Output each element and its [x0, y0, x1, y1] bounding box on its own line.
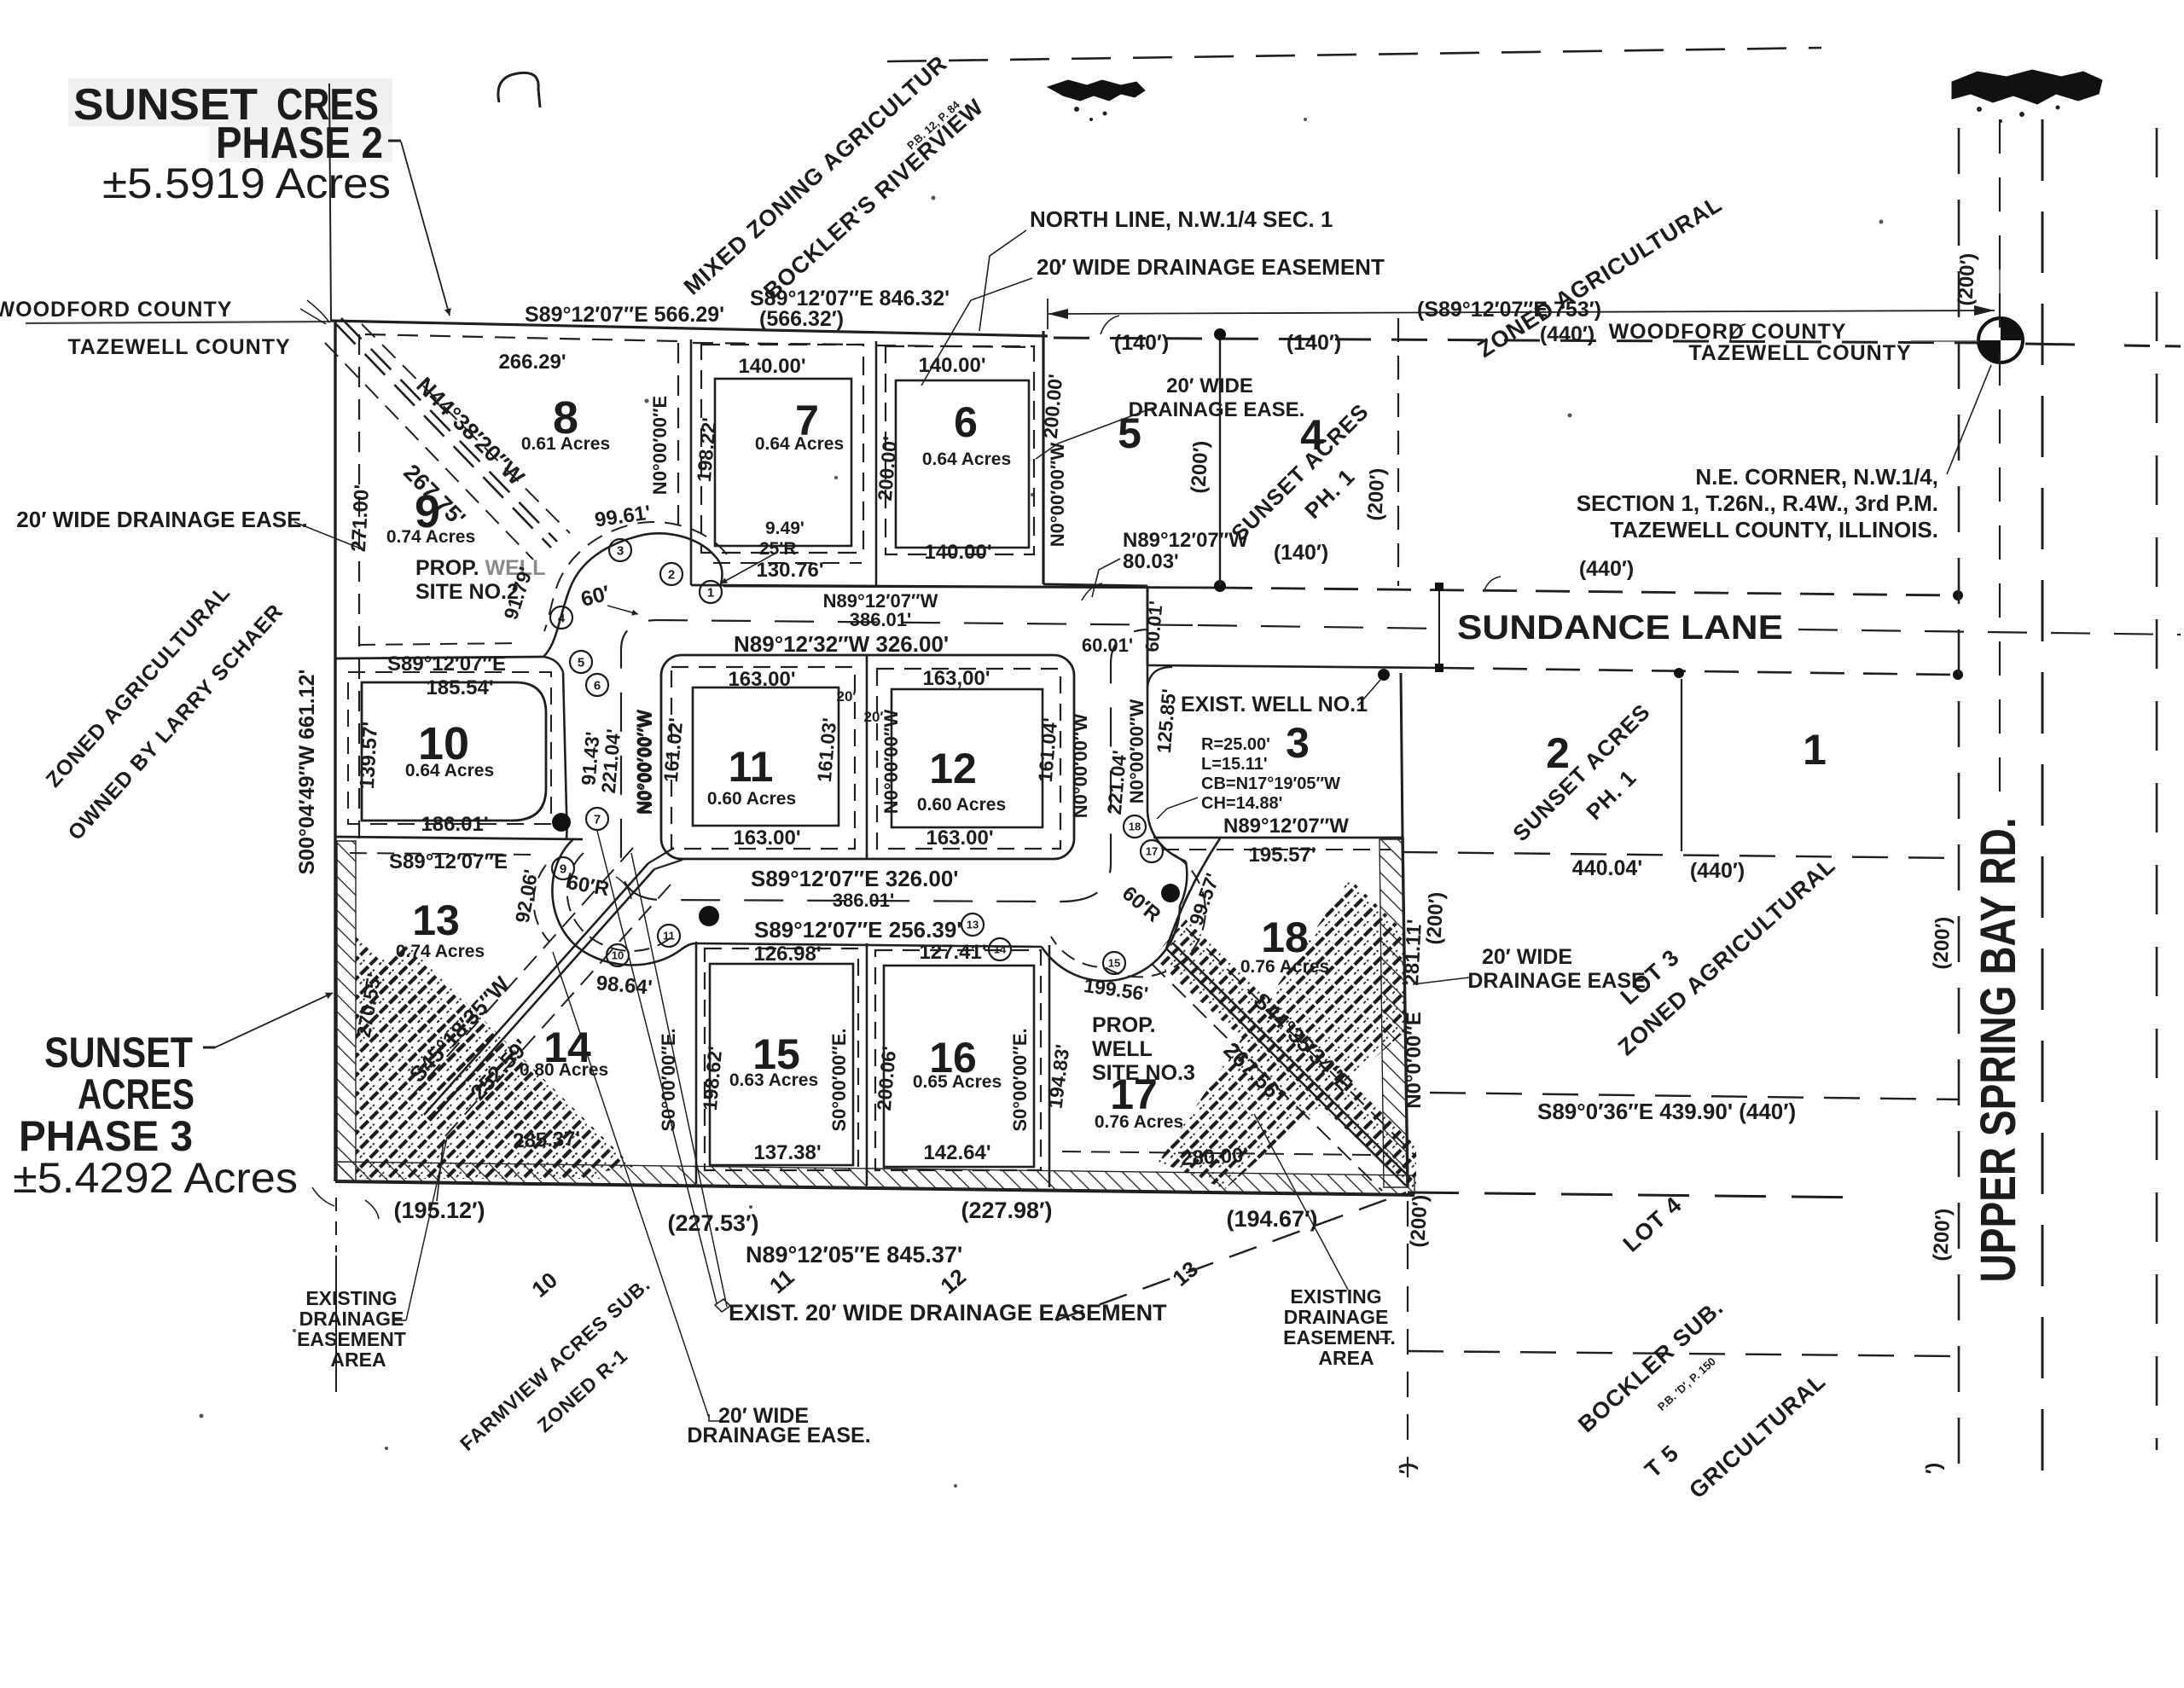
- svg-text:386.01': 386.01': [833, 890, 895, 911]
- svg-text:0.63 Acres: 0.63 Acres: [729, 1070, 818, 1090]
- svg-text:20′ WIDE DRAINAGE EASE.: 20′ WIDE DRAINAGE EASE.: [16, 507, 307, 532]
- svg-text:′): ′): [1922, 1462, 1946, 1475]
- svg-text:60.01': 60.01': [1141, 600, 1166, 653]
- svg-text:S89°12′07″E 256.39': S89°12′07″E 256.39': [754, 917, 961, 943]
- svg-text:142.64': 142.64': [923, 1141, 990, 1164]
- svg-text:N0°00′00″W: N0°00′00″W: [635, 711, 656, 815]
- svg-text:126.98': 126.98': [753, 943, 821, 966]
- svg-text:186.01': 186.01': [421, 813, 488, 836]
- svg-text:N0°00′00″W: N0°00′00″W: [1126, 699, 1147, 804]
- svg-text:SUNSET: SUNSET: [44, 1029, 193, 1076]
- svg-text:13: 13: [967, 919, 979, 931]
- svg-text:0.64 Acres: 0.64 Acres: [922, 450, 1011, 469]
- svg-text:TAZEWELL COUNTY: TAZEWELL COUNTY: [67, 335, 290, 359]
- svg-text:98.64': 98.64': [595, 972, 653, 1000]
- svg-text:163.00': 163.00': [926, 827, 993, 850]
- svg-text:AREA: AREA: [1318, 1347, 1374, 1369]
- svg-text:6: 6: [594, 678, 601, 693]
- svg-text:N0°00′00″E: N0°00′00″E: [649, 396, 671, 495]
- svg-text:(227.53′): (227.53′): [667, 1210, 758, 1236]
- svg-text:N0°00′00″W: N0°00′00″W: [1047, 443, 1068, 548]
- svg-text:25'R: 25'R: [759, 539, 797, 559]
- svg-text:140.00': 140.00': [924, 541, 991, 564]
- svg-text:15: 15: [1108, 957, 1120, 970]
- svg-text:12: 12: [929, 745, 977, 792]
- svg-text:9: 9: [560, 861, 566, 876]
- svg-text:(440′): (440′): [1579, 557, 1634, 581]
- svg-text:SUNDANCE LANE: SUNDANCE LANE: [1457, 609, 1783, 647]
- svg-text:271.00': 271.00': [347, 484, 374, 552]
- svg-text:(195.12′): (195.12′): [393, 1198, 485, 1223]
- svg-text:(140′): (140′): [1114, 331, 1169, 355]
- svg-text:(227.98′): (227.98′): [961, 1198, 1052, 1223]
- svg-text:N89°12′05″E 845.37': N89°12′05″E 845.37': [746, 1242, 962, 1267]
- svg-text:137.38': 137.38': [753, 1141, 821, 1164]
- svg-text:S89°12′07″E 566.29': S89°12′07″E 566.29': [525, 303, 724, 327]
- svg-text:R=25.00': R=25.00': [1201, 735, 1270, 754]
- svg-text:EXISTING: EXISTING: [1290, 1285, 1381, 1308]
- svg-text:DRAINAGE EASE.: DRAINAGE EASE.: [1129, 398, 1305, 421]
- svg-text:163.00': 163.00': [733, 827, 800, 850]
- svg-text:0.74 Acres: 0.74 Acres: [386, 527, 475, 547]
- svg-text:11: 11: [663, 930, 675, 943]
- svg-text:139.57': 139.57': [356, 721, 382, 789]
- svg-text:±5.5919 Acres: ±5.5919 Acres: [102, 160, 391, 207]
- svg-text:127.41': 127.41': [919, 941, 986, 964]
- svg-text:S89°12′07″E 326.00': S89°12′07″E 326.00': [751, 866, 958, 891]
- svg-text:S0°00′00″E.: S0°00′00″E.: [658, 1028, 679, 1131]
- svg-text:WELL: WELL: [1092, 1037, 1153, 1061]
- svg-text:NORTH LINE, N.W.1/4 SEC. 1: NORTH LINE, N.W.1/4 SEC. 1: [1030, 206, 1333, 232]
- svg-text:S0°00′00″E.: S0°00′00″E.: [1009, 1028, 1031, 1131]
- svg-text:EASEMENT.: EASEMENT.: [1283, 1326, 1396, 1349]
- svg-text:(440′): (440′): [1690, 859, 1745, 883]
- svg-text:CB=N17°19′05″W: CB=N17°19′05″W: [1201, 774, 1340, 793]
- svg-text:SITE NO.2: SITE NO.2: [415, 580, 519, 604]
- svg-text:163.00': 163.00': [728, 668, 795, 691]
- svg-text:60.01': 60.01': [1082, 635, 1133, 656]
- svg-text:185.54': 185.54': [426, 676, 493, 699]
- svg-text:L=15.11': L=15.11': [1201, 755, 1268, 774]
- svg-text:N89°12′32″W 326.00': N89°12′32″W 326.00': [734, 631, 949, 657]
- svg-text:S00°04′49″W 661.12': S00°04′49″W 661.12': [295, 669, 319, 874]
- svg-text:20′: 20′: [864, 709, 884, 725]
- svg-text:163,00': 163,00': [922, 667, 990, 690]
- svg-text:S0°00′00″E.: S0°00′00″E.: [828, 1028, 850, 1131]
- svg-text:20′ WIDE: 20′ WIDE: [1482, 945, 1572, 969]
- svg-text:0.60 Acres: 0.60 Acres: [917, 795, 1006, 815]
- svg-text:0.65 Acres: 0.65 Acres: [913, 1072, 1002, 1092]
- svg-text:3: 3: [1286, 719, 1310, 767]
- svg-text:440.04': 440.04': [1572, 856, 1642, 880]
- svg-text:PROP.: PROP.: [1092, 1013, 1156, 1037]
- svg-text:130.76': 130.76': [756, 559, 823, 582]
- svg-text:6: 6: [954, 398, 978, 446]
- svg-text:DRAINAGE: DRAINAGE: [1284, 1306, 1389, 1328]
- svg-text:(140′): (140′): [1274, 541, 1328, 565]
- svg-text:N89°12′07″W: N89°12′07″W: [1223, 815, 1349, 838]
- svg-text:N.E. CORNER, N.W.1/4,: N.E. CORNER, N.W.1/4,: [1695, 464, 1938, 490]
- svg-text:ACRES: ACRES: [78, 1070, 195, 1118]
- svg-text:195.57': 195.57': [1248, 844, 1316, 867]
- svg-text:TAZEWELL COUNTY, ILLINOIS.: TAZEWELL COUNTY, ILLINOIS.: [1610, 517, 1938, 542]
- svg-text:9.49': 9.49': [765, 519, 804, 538]
- svg-text:PHASE 3: PHASE 3: [19, 1112, 193, 1160]
- svg-text:4: 4: [558, 611, 566, 625]
- svg-text:DRAINAGE EASE.: DRAINAGE EASE.: [687, 1424, 870, 1447]
- svg-text:(200′): (200′): [1929, 916, 1955, 970]
- svg-text:UPPER SPRING BAY RD.: UPPER SPRING BAY RD.: [1971, 818, 2026, 1283]
- svg-text:17: 17: [1110, 1070, 1158, 1118]
- svg-text:80.03': 80.03': [1123, 550, 1179, 573]
- svg-text:N0°00′00″W: N0°00′00″W: [1070, 714, 1091, 819]
- svg-text:S89°0′36″E 439.90' (440′): S89°0′36″E 439.90' (440′): [1537, 1099, 1796, 1124]
- svg-text:(140′): (140′): [1287, 331, 1341, 355]
- svg-text:N0°00′00″W: N0°00′00″W: [880, 710, 902, 815]
- svg-text:10: 10: [612, 949, 624, 962]
- svg-text:CH=14.88': CH=14.88': [1201, 794, 1282, 813]
- svg-text:(200′): (200′): [1187, 440, 1212, 494]
- svg-text:13: 13: [412, 896, 460, 944]
- svg-text:20′: 20′: [837, 688, 857, 705]
- svg-text:18: 18: [1129, 821, 1141, 833]
- svg-text:0.60 Acres: 0.60 Acres: [707, 789, 796, 809]
- svg-text:(566.32′): (566.32′): [759, 307, 844, 331]
- svg-text:SECTION 1, T.26N., R.4W., 3rd: SECTION 1, T.26N., R.4W., 3rd P.M.: [1577, 490, 1938, 516]
- svg-text:′): ′): [1396, 1462, 1420, 1475]
- svg-text:0.76 Acres: 0.76 Acres: [1095, 1112, 1183, 1132]
- svg-text:EXIST. WELL NO.1: EXIST. WELL NO.1: [1181, 693, 1368, 716]
- svg-text:DRAINAGE: DRAINAGE: [299, 1308, 404, 1330]
- svg-text:14: 14: [994, 943, 1007, 956]
- svg-text:WOODFORD COUNTY: WOODFORD COUNTY: [0, 298, 232, 322]
- svg-text:(200′): (200′): [1363, 467, 1389, 521]
- svg-text:7: 7: [594, 812, 601, 827]
- svg-text:11: 11: [729, 743, 774, 791]
- svg-text:140.00': 140.00': [738, 355, 805, 378]
- svg-text:17: 17: [1146, 845, 1158, 858]
- svg-text:0.61 Acres: 0.61 Acres: [521, 434, 610, 454]
- svg-text:0.64 Acres: 0.64 Acres: [405, 761, 494, 780]
- svg-text:(200′): (200′): [1406, 1194, 1432, 1248]
- svg-text:EXISTING: EXISTING: [305, 1287, 397, 1309]
- svg-text:(200′): (200′): [1929, 1208, 1955, 1262]
- svg-text:DRAINAGE EASE.: DRAINAGE EASE.: [1467, 969, 1651, 993]
- svg-text:(440′): (440′): [1540, 322, 1594, 346]
- svg-text:20′ WIDE DRAINAGE EASEMENT: 20′ WIDE DRAINAGE EASEMENT: [1037, 254, 1385, 280]
- svg-text:±5.4292 Acres: ±5.4292 Acres: [13, 1154, 298, 1202]
- svg-text:266.29': 266.29': [498, 351, 566, 374]
- svg-text:EASEMENT: EASEMENT: [297, 1328, 406, 1350]
- svg-text:1: 1: [707, 585, 714, 600]
- svg-text:TAZEWELL COUNTY: TAZEWELL COUNTY: [1688, 341, 1911, 365]
- svg-text:3: 3: [617, 543, 624, 558]
- svg-text:1: 1: [1803, 726, 1827, 774]
- svg-text:(194.67′): (194.67′): [1226, 1206, 1317, 1232]
- svg-text:(200′): (200′): [1422, 891, 1448, 945]
- svg-text:20′ WIDE: 20′ WIDE: [1166, 374, 1253, 397]
- svg-text:2: 2: [668, 567, 675, 582]
- svg-text:386.01': 386.01': [850, 609, 912, 630]
- svg-text:0.64 Acres: 0.64 Acres: [755, 434, 844, 454]
- svg-text:AREA: AREA: [330, 1349, 386, 1371]
- svg-text:5: 5: [578, 655, 584, 670]
